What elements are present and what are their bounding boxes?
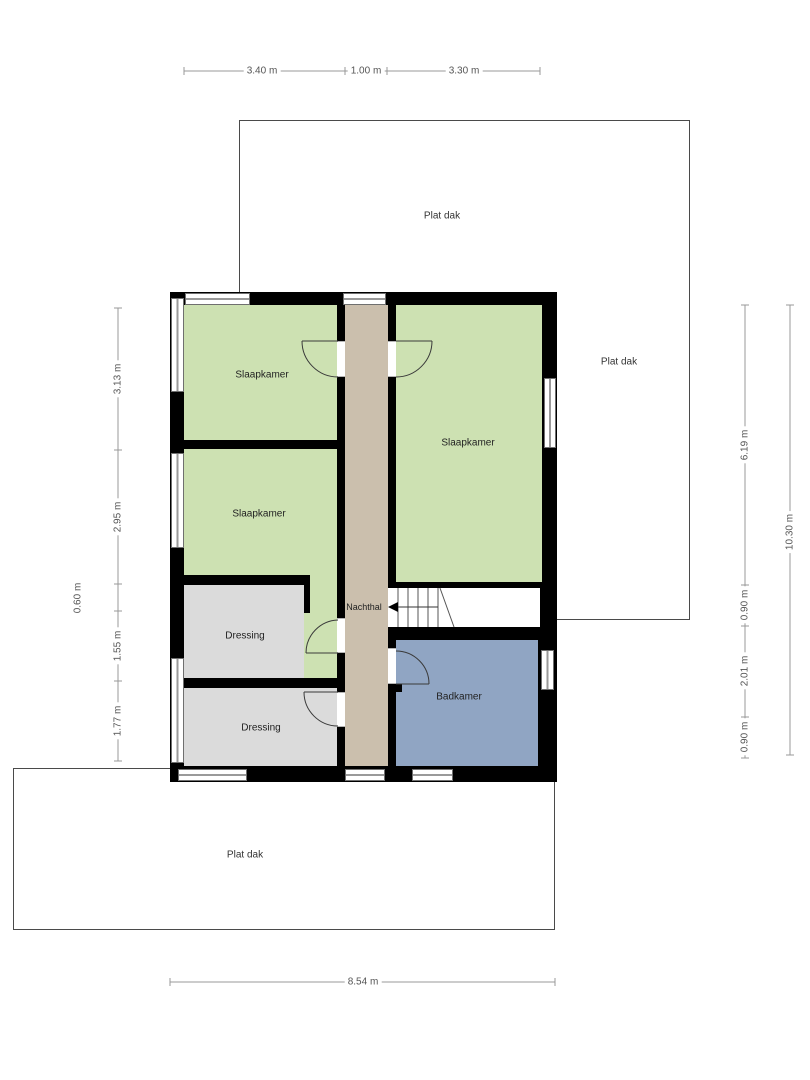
label-dressing-2: Dressing	[241, 723, 280, 734]
stairs-direction-arrow-icon	[388, 602, 398, 612]
label-badkamer: Badkamer	[436, 692, 482, 703]
label-dressing-1: Dressing	[225, 631, 264, 642]
flat-roof-right-label: Plat dak	[601, 357, 637, 368]
door-arc-badkamer	[396, 651, 429, 684]
door-arc-dressing-1	[306, 620, 338, 653]
dim-right-total: 10.30 m	[785, 511, 796, 553]
dim-top-3: 3.30 m	[446, 66, 483, 77]
label-slaapkamer-2: Slaapkamer	[232, 509, 285, 520]
label-slaapkamer-1: Slaapkamer	[235, 370, 288, 381]
dim-top-1: 3.40 m	[244, 66, 281, 77]
dim-left-4: 1.55 m	[113, 628, 124, 665]
door-arc-dressing-2	[304, 692, 338, 726]
door-arc-slaapkamer-1	[302, 341, 338, 377]
flat-roof-bottom-label: Plat dak	[227, 850, 263, 861]
dim-right-1: 6.19 m	[740, 427, 751, 464]
floorplan-canvas: Plat dak Plat dak Plat dak Slaapkamer Sl…	[0, 0, 810, 1080]
dim-right-3: 2.01 m	[740, 653, 751, 690]
dim-left-3: 0.60 m	[73, 580, 84, 617]
label-nachthal: Nachthal	[346, 602, 382, 612]
dim-bottom: 8.54 m	[345, 977, 382, 988]
flat-roof-top-label: Plat dak	[424, 211, 460, 222]
dim-left-5: 1.77 m	[113, 703, 124, 740]
dim-top-2: 1.00 m	[348, 66, 385, 77]
label-slaapkamer-3: Slaapkamer	[441, 438, 494, 449]
dim-left-1: 3.13 m	[113, 361, 124, 398]
floorplan-overlay	[0, 0, 810, 1080]
dim-right-2: 0.90 m	[740, 587, 751, 624]
dim-right-4: 0.90 m	[740, 719, 751, 756]
door-arc-slaapkamer-3	[396, 341, 432, 377]
dim-left-2: 2.95 m	[113, 499, 124, 536]
dimension-lines	[114, 67, 794, 986]
